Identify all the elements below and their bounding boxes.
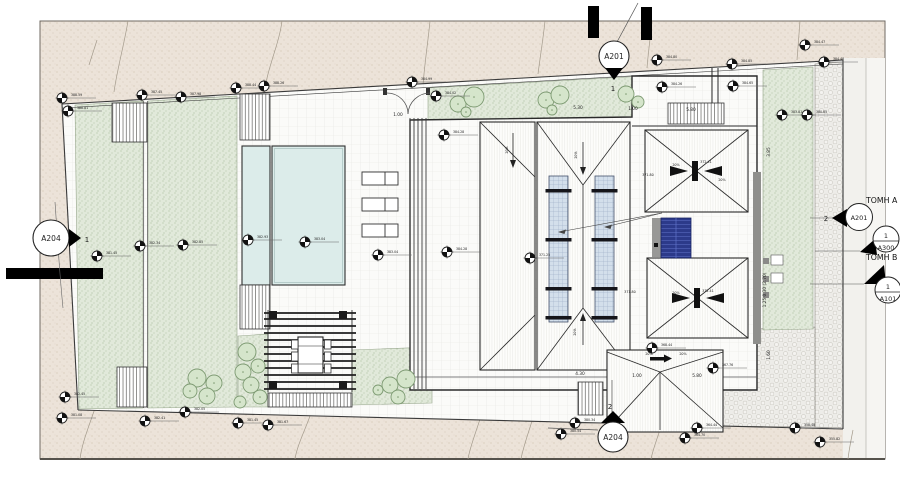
spot-elevation-label: 382.85	[192, 240, 203, 244]
spot-elevation-label: 381.08	[71, 413, 82, 417]
east-wall	[753, 172, 761, 344]
spot-elevation-label: 382.93	[257, 235, 268, 239]
roof-south-annex	[607, 350, 723, 432]
section-line-tick-west	[6, 268, 103, 279]
spot-elevation-label: 384.85	[741, 59, 752, 63]
text-label: 372.41	[700, 160, 712, 164]
marker-num: 2	[824, 215, 828, 223]
spot-elevation-label: 367.76	[722, 363, 733, 367]
section-line-tick-top-left	[588, 6, 599, 38]
tree	[397, 370, 415, 388]
spot-elevation-label: 384.65	[742, 81, 753, 85]
pergola-steps	[268, 393, 352, 407]
marker-num: 1	[884, 232, 888, 240]
marker-id: A300	[878, 244, 895, 252]
spot-elevation-label: 384.99	[421, 77, 432, 81]
spot-elevation-label: 384.48	[833, 57, 844, 61]
spot-elevation-label: 384.28	[456, 247, 467, 251]
tree	[238, 343, 256, 361]
spot-elevation-label: 388.26	[273, 81, 284, 85]
spot-elevation-label: 384.02	[445, 91, 456, 95]
tree	[618, 86, 634, 102]
spot-elevation-label: 380.34	[584, 418, 595, 422]
section-line-tick-top-right	[641, 7, 652, 40]
marker-num: 1	[85, 236, 89, 244]
tree	[373, 385, 383, 395]
pool-main	[272, 146, 345, 285]
outdoor-table	[298, 337, 323, 373]
spot-elevation-label: 382.05	[194, 407, 205, 411]
tree	[461, 107, 471, 117]
right-margin-strip	[843, 58, 866, 459]
marker-id: A201	[851, 214, 868, 222]
tree	[547, 105, 557, 115]
text-label: 371.80	[624, 290, 636, 294]
section-title-a: ΤΟΜΗ A	[865, 196, 898, 205]
text-label: 1.00	[632, 373, 642, 379]
skylight-left	[549, 176, 568, 322]
lawn-west-a	[75, 101, 143, 409]
text-label: 20%	[672, 291, 679, 295]
text-label: 5.80	[686, 107, 696, 113]
marker-id: A204	[41, 234, 61, 243]
stair-pool-south	[240, 285, 270, 329]
spot-elevation-label: 368.44	[661, 343, 672, 347]
tree	[234, 396, 246, 408]
site-plan-drawing: 388.59388.81387.45387.98388.44388.26384.…	[0, 0, 900, 480]
skylight-right	[595, 176, 614, 322]
tree	[251, 359, 265, 373]
stair-south	[578, 382, 603, 415]
text-label: 20%	[679, 352, 686, 356]
lawn-west-b	[148, 96, 237, 408]
marker-id: A101	[880, 295, 897, 303]
marker-num: 1	[886, 283, 890, 291]
spot-elevation-label: 384.47	[814, 40, 825, 44]
spot-elevation-label: 380.85	[816, 110, 827, 114]
spot-elevation-label: 358.48	[804, 423, 815, 427]
spot-elevation-label: 383.81	[791, 110, 802, 114]
stair-lawn-south	[117, 367, 147, 407]
marker-num: 2	[608, 403, 612, 411]
text-label: 20%	[573, 328, 577, 335]
spot-elevation-label: 382.34	[149, 241, 160, 245]
spot-elevation-label: 381.45	[106, 251, 117, 255]
pool-lane	[242, 146, 270, 285]
text-label: 372.41	[702, 289, 714, 293]
spot-elevation-label: 388.81	[77, 106, 88, 110]
spot-elevation-label: 381.67	[277, 420, 288, 424]
text-label: 371.80	[642, 173, 654, 177]
text-label: 5.30	[573, 105, 583, 111]
spot-elevation-label: 387.98	[190, 92, 201, 96]
lounge-chairs	[362, 172, 398, 237]
tree	[253, 390, 267, 404]
text-label: 5.80	[692, 373, 702, 379]
solar-mount	[652, 218, 661, 257]
spot-elevation-label: 388.44	[245, 83, 256, 87]
spot-elevation-label: 384.28	[453, 130, 464, 134]
text-label: 1.25 0.30 (2.70)	[762, 272, 768, 307]
tree	[464, 87, 484, 107]
tree	[551, 86, 569, 104]
marker-id: A204	[603, 433, 623, 442]
spot-elevation-label: 388.59	[71, 93, 82, 97]
text-label: 20%	[672, 163, 679, 167]
gravel-strip	[815, 62, 843, 428]
roof-pyramid-north	[645, 130, 748, 212]
spot-elevation-label: 383.04	[314, 237, 325, 241]
stair-building-north	[668, 103, 724, 124]
text-label: 20%	[718, 178, 725, 182]
spot-elevation-label: 371.25	[539, 253, 550, 257]
spot-elevation-label: 384.26	[671, 82, 682, 86]
roof-west	[480, 122, 535, 370]
marker-num: 1	[611, 85, 615, 93]
roof-pyramid-south	[647, 258, 748, 338]
spot-elevation-label: 382.41	[154, 416, 165, 420]
text-label: 1.00	[628, 106, 638, 112]
spot-elevation-label: 382.45	[74, 392, 85, 396]
spot-elevation-label: 384.80	[666, 55, 677, 59]
tree	[183, 384, 197, 398]
tree	[199, 388, 215, 404]
stair-lawn-north	[112, 103, 147, 142]
spot-elevation-label: 387.45	[151, 90, 162, 94]
text-label: 20%	[505, 146, 509, 153]
spot-elevation-label: 355.82	[829, 437, 840, 441]
swimming-pool	[242, 146, 345, 285]
spot-elevation-label: 381.45	[247, 418, 258, 422]
spot-elevation-label: 383.04	[387, 250, 398, 254]
text-label: 1.60	[766, 350, 772, 360]
text-label: 20%	[645, 352, 652, 356]
stair-pool-north	[240, 94, 270, 140]
marker-id: A201	[604, 52, 624, 61]
spot-elevation-label: 364.70	[694, 433, 705, 437]
text-label: 3.85	[766, 147, 772, 157]
text-label: 1.00	[393, 112, 403, 118]
text-label: 20%	[574, 151, 578, 158]
text-label: 4.30	[575, 371, 585, 377]
section-title-b: ΤΟΜΗ Β	[865, 253, 897, 262]
planting-strip-east	[763, 67, 813, 330]
tree	[391, 390, 405, 404]
spot-elevation-label: 364.44	[706, 423, 717, 427]
